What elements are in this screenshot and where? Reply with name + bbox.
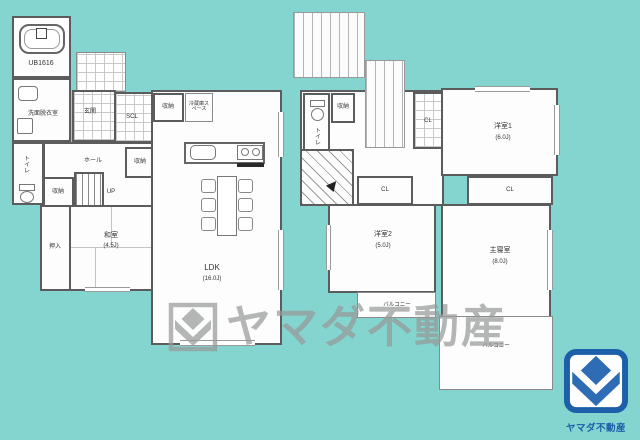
room-bath [12,16,71,78]
yamada-logo: ヤマダ不動産 [560,348,632,434]
window-mark [278,112,284,157]
ldk-label: LDK [204,264,220,272]
washer-icon [17,118,33,134]
entrance-porch [76,52,126,92]
toilet-1f-label: トイレ [22,155,31,173]
washitsu-label: 和室 [104,232,118,240]
storage-kitchen-label: 収納 [162,103,174,111]
dining-chair [238,179,253,193]
floorplan-image: UB1616 洗面脱衣室 トイレ ホール 玄関 SCL 収納 収納 UP 押入 [0,0,640,440]
window-mark [554,105,560,155]
room-genkan [72,90,116,142]
fridge-label: 冷蔵庫スペース [187,102,211,112]
window-mark [547,230,553,290]
closet1-label: CL [381,186,389,194]
dining-chair [201,198,216,212]
dining-chair [201,217,216,231]
toilet-bowl-icon [311,108,324,121]
window-mark [278,230,284,290]
window-mark [475,86,530,92]
western1-size: (6.0J) [495,134,510,142]
hall-label: ホール [84,157,102,165]
kitchen-sink-icon [190,145,216,160]
scl-label: SCL [126,113,138,121]
stairs-up-label: UP [107,188,115,196]
tatami-line [111,207,112,247]
western1-label: 洋室1 [494,123,512,131]
master-size: (8.0J) [492,258,507,266]
western2-label: 洋室2 [374,231,392,239]
dining-table [217,176,237,236]
toilet-2f-label: トイレ [313,127,322,145]
room-toilet-1f [12,142,44,205]
burner-icon [252,148,260,156]
window-mark [326,225,331,270]
genkan-label: 玄関 [84,108,96,116]
stairs-down [300,149,354,206]
window-mark [85,287,130,292]
closet-vertical-label: CL [424,117,432,125]
storage-mid-label: 収納 [134,158,146,166]
bath-label: UB1616 [28,60,53,68]
watermark-text: ヤマダ不動産 [226,302,508,352]
room-western1 [441,88,558,176]
watermark: ヤマダ不動産 [168,302,508,352]
washroom-label: 洗面脱衣室 [28,110,58,118]
master-label: 主寝室 [490,247,511,255]
yamada-mark-icon [563,348,629,414]
sink-icon [18,86,38,101]
western2-size: (5.0J) [375,242,390,250]
toilet-tank-icon [310,100,325,107]
ldk-size: (16.0J) [203,275,222,283]
closet2-label: CL [506,186,514,194]
dining-chair [238,198,253,212]
dining-chair [238,217,253,231]
oshiire-label: 押入 [49,243,61,251]
dining-chair [201,179,216,193]
roof-area [293,12,365,78]
washitsu-size: (4.5J) [103,242,118,250]
stove-front-icon [237,163,264,167]
toilet-bowl-icon [20,191,34,203]
yamada-mark-watermark-icon [168,302,218,352]
logo-text: ヤマダ不動産 [560,420,632,434]
tatami-line [95,248,96,289]
roof-area [365,60,405,148]
storage-2f-label: 収納 [337,103,349,111]
storage-hall-label: 収納 [52,188,64,196]
burner-icon [241,148,249,156]
toilet-tank-icon [19,184,35,191]
bath-control-icon [36,28,47,39]
